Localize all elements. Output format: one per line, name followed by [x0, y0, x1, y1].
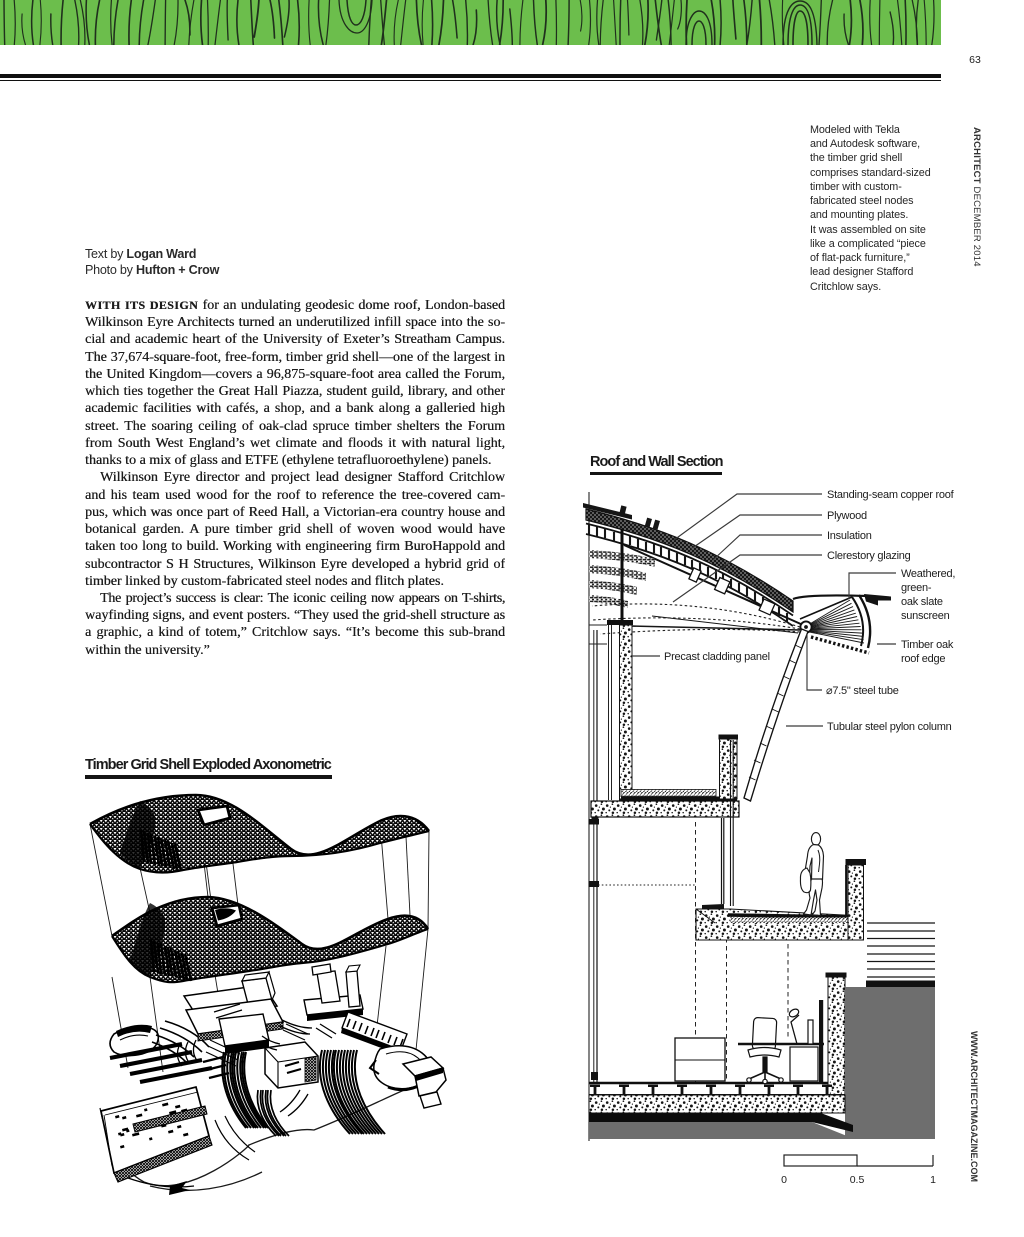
svg-text:Weathered,: Weathered,: [901, 568, 955, 580]
svg-text:oak slate: oak slate: [901, 596, 943, 608]
svg-text:Timber oak: Timber oak: [901, 639, 954, 651]
svg-text:1: 1: [930, 1174, 936, 1186]
svg-text:Insulation: Insulation: [827, 530, 872, 542]
svg-text:Clerestory glazing: Clerestory glazing: [827, 550, 911, 562]
svg-text:green-: green-: [901, 582, 932, 594]
svg-text:Precast cladding panel: Precast cladding panel: [664, 651, 770, 663]
svg-text:roof edge: roof edge: [901, 653, 945, 665]
svg-text:0.5: 0.5: [850, 1174, 865, 1186]
svg-text:Tubular steel pylon column: Tubular steel pylon column: [827, 721, 952, 733]
svg-text:0: 0: [781, 1174, 787, 1186]
svg-text:⌀7.5" steel tube: ⌀7.5" steel tube: [826, 685, 899, 697]
svg-text:Plywood: Plywood: [827, 510, 867, 522]
svg-text:sunscreen: sunscreen: [901, 610, 950, 622]
svg-text:Standing-seam copper roof: Standing-seam copper roof: [827, 489, 955, 501]
